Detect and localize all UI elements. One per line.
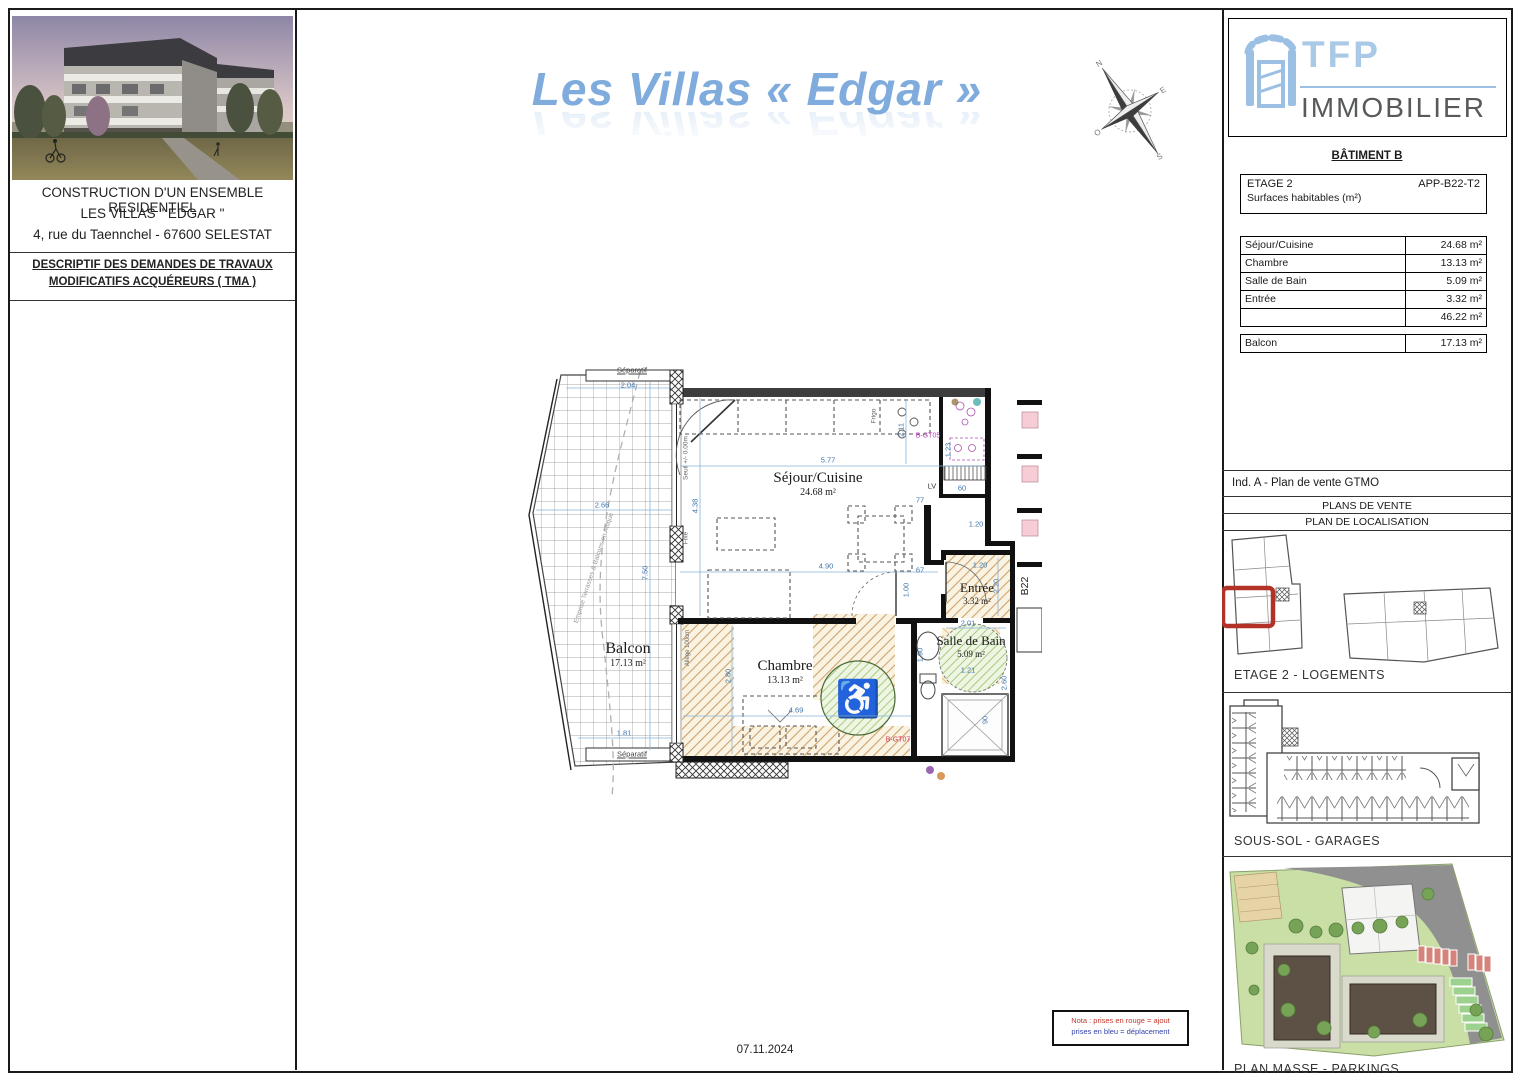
compass-o-label: O (1092, 127, 1102, 138)
caption-etage2: ETAGE 2 - LOGEMENTS (1234, 668, 1385, 682)
logo-word: IMMOBILIER (1301, 92, 1486, 124)
wheelchair-icon: ♿ (836, 678, 881, 719)
room-label-sdb: Salle de Bain 5.09 m² (936, 633, 1005, 659)
building-photo (12, 16, 293, 180)
project-title-line2: LES VILLAS " EDGAR " (10, 206, 295, 221)
garage-plan-thumbnail (1222, 698, 1510, 830)
localisation-plan-thumbnail (1222, 532, 1510, 664)
caption-soussol: SOUS-SOL - GARAGES (1234, 834, 1380, 848)
left-column-divider (295, 10, 297, 1070)
left-panel-divider-1 (10, 252, 295, 253)
table-row: Entrée3.32 m² (1241, 291, 1486, 309)
dim-balcon-height: 7.50 (641, 566, 650, 581)
dim-vestibule-width2: 67 (916, 566, 924, 575)
dim-sdb-width3: 90 (981, 716, 990, 724)
dim-balcon-width3: 1.81 (617, 729, 632, 738)
plans-de-vente-header: PLANS DE VENTE (1222, 500, 1512, 512)
separatif-bottom-label: Séparatif (617, 750, 647, 759)
nota-line1: Nota : prises en rouge = ajout (1054, 1016, 1187, 1025)
dim-chambre-width: 4.69 (789, 706, 804, 715)
dim-sejour-height: 4.38 (691, 499, 700, 514)
dim-sdb-width2: 1.21 (961, 666, 976, 675)
floor-plan: ♿ Séjour/Cuisine 24.68 m² Chambre 13.13 … (528, 358, 1042, 798)
dim-kitchen-height2: 1.23 (944, 443, 953, 458)
dim-balcon-width: 2.04 (621, 381, 636, 390)
table-row-total: 46.22 m² (1241, 309, 1486, 326)
caption-masse: PLAN MASSE - PARKINGS (1234, 1062, 1399, 1076)
document-title-reflection: Les Villas « Edgar » (522, 112, 992, 146)
dim-balcon-width2: 2.66 (595, 501, 610, 510)
dim-sejour-width2: 4.90 (819, 562, 834, 571)
dim-sdb-width: 2.01 (961, 619, 976, 628)
batiment-title: BÂTIMENT B (1222, 150, 1512, 162)
logo-brand: TFP (1302, 34, 1381, 76)
b22-label: B22 (1019, 577, 1031, 596)
table-row: Salle de Bain5.09 m² (1241, 273, 1486, 291)
bgt05-label: B-GT05 (916, 433, 941, 440)
logo-divider (1300, 86, 1496, 88)
lv-annotation: LV (928, 482, 937, 491)
compass-n-label: N (1094, 58, 1104, 69)
nota-line2: prises en bleu = déplacement (1054, 1027, 1187, 1036)
surfaces-table: Séjour/Cuisine24.68 m² Chambre13.13 m² S… (1240, 236, 1487, 327)
right-divider-5 (1222, 692, 1512, 693)
right-divider-2 (1222, 496, 1512, 497)
dim-entree-height2: 1.00 (902, 583, 911, 598)
right-divider-1 (1222, 470, 1512, 471)
table-row: Chambre13.13 m² (1241, 255, 1486, 273)
etage-label: ETAGE 2 (1247, 178, 1293, 190)
dim-vestibule-width: 77 (916, 496, 924, 505)
bgt07-label: B-GT07 (886, 737, 911, 744)
etage-box: ETAGE 2 APP-B22-T2 Surfaces habitables (… (1240, 174, 1487, 214)
project-address: 4, rue du Taennchel - 67600 SELESTAT (10, 227, 295, 242)
dim-entree-width2: 1.20 (973, 561, 988, 570)
descriptif-line1: DESCRIPTIF DES DEMANDES DE TRAVAUX (10, 259, 295, 271)
apartment-ref: APP-B22-T2 (1418, 178, 1480, 190)
dim-entree-width: 1.20 (969, 520, 984, 529)
room-label-chambre: Chambre 13.13 m² (758, 658, 813, 686)
fixe-annotation: Fixe (683, 532, 690, 544)
floor-plan-svg: ♿ (528, 358, 1042, 798)
dim-sdb-height2: 2.60 (1000, 676, 1009, 691)
right-divider-3 (1222, 513, 1512, 514)
right-divider-6 (1222, 856, 1512, 857)
left-panel-divider-2 (10, 300, 295, 301)
site-plan-thumbnail (1224, 860, 1510, 1058)
dim-sejour-width: 5.77 (821, 456, 836, 465)
descriptif-line2: MODIFICATIFS ACQUÉREURS ( TMA ) (10, 276, 295, 288)
separatif-top-label: Séparatif (617, 366, 647, 375)
table-row: Séjour/Cuisine24.68 m² (1241, 237, 1486, 255)
tfp-logo-icon (1242, 28, 1300, 112)
ind-label: Ind. A - Plan de vente GTMO (1232, 477, 1379, 489)
room-label-entree: Entrée 3.32 m² (960, 580, 994, 606)
date-label: 07.11.2024 (680, 1044, 850, 1056)
plan-localisation-header: PLAN DE LOCALISATION (1222, 516, 1512, 528)
dim-chambre-height: 2.80 (724, 669, 733, 684)
room-label-sejour: Séjour/Cuisine 24.68 m² (773, 470, 862, 498)
dim-kitchen-width: 60 (958, 484, 966, 493)
dim-sdb-height: 1.90 (916, 648, 925, 663)
frigo-annotation: Frigo (871, 409, 878, 424)
document-title: Les Villas « Edgar » (522, 62, 992, 116)
room-label-balcon: Balcon 17.13 m² (605, 640, 650, 669)
dim-entree-height: 2.20 (992, 579, 1001, 594)
dim-kitchen-height: 2.11 (897, 423, 906, 437)
compass-rose-icon: N E S O (1088, 56, 1172, 166)
balcon-row: Balcon17.13 m² (1240, 334, 1487, 353)
compass-s-label: S (1155, 151, 1164, 161)
surfaces-title: Surfaces habitables (m²) (1247, 192, 1480, 204)
compass-e-label: E (1158, 85, 1167, 95)
seuil-annotation: Seuil +/- 0.00m (683, 436, 690, 480)
nota-box: Nota : prises en rouge = ajout prises en… (1052, 1010, 1189, 1046)
right-divider-4 (1222, 530, 1512, 531)
allege-annotation: Allège 100cm (685, 630, 691, 666)
